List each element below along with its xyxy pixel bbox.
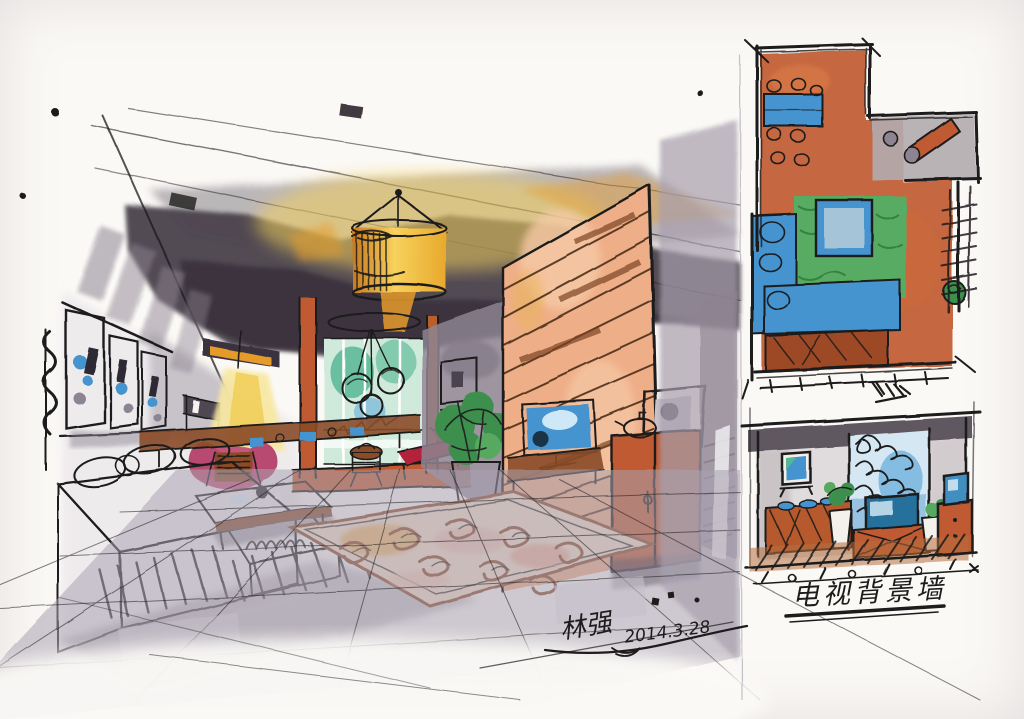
tv-wall-elevation xyxy=(742,402,980,584)
floor-plan xyxy=(742,38,980,402)
plan-signature-scribble xyxy=(872,382,910,402)
plan-top-right-room xyxy=(872,114,976,180)
sketch-paper: 电视背景墙 林强 2014.3.28 xyxy=(0,0,1024,719)
panel-divider-line xyxy=(740,55,742,700)
interior-sketch-scene: 电视背景墙 林强 2014.3.28 xyxy=(0,0,1024,719)
window-garden-view xyxy=(324,330,422,464)
